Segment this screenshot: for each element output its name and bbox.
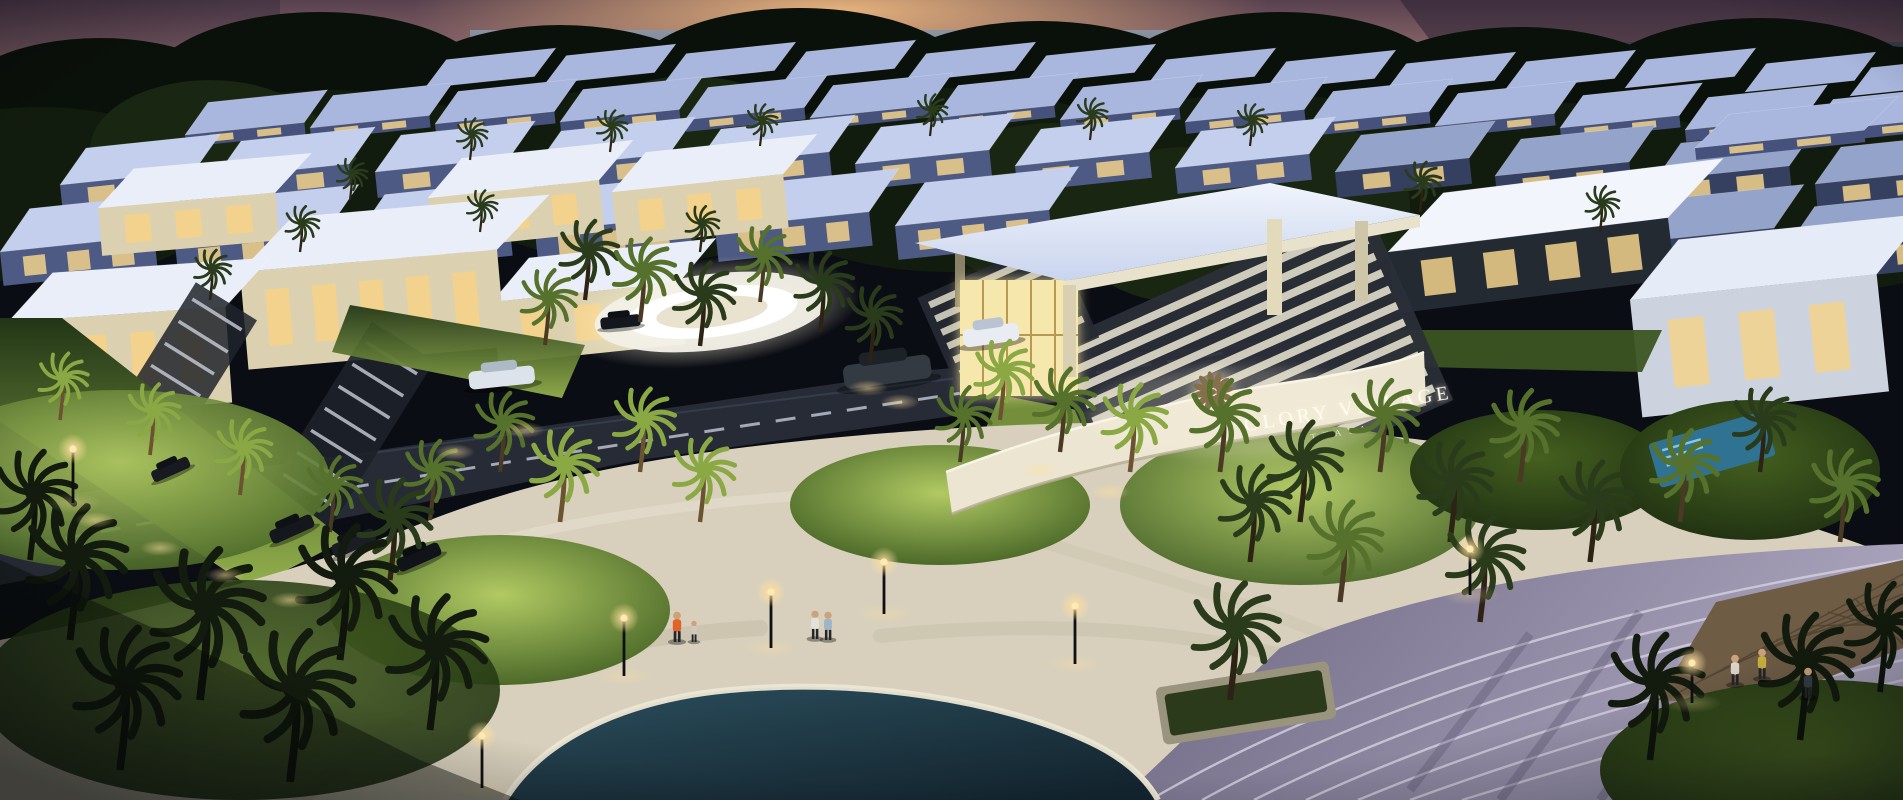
vignette-overlay xyxy=(0,0,1903,800)
scene-canvas: GLORY VILLAGE PATTAYA xyxy=(0,0,1903,800)
resort-aerial-render: GLORY VILLAGE PATTAYA xyxy=(0,0,1903,800)
